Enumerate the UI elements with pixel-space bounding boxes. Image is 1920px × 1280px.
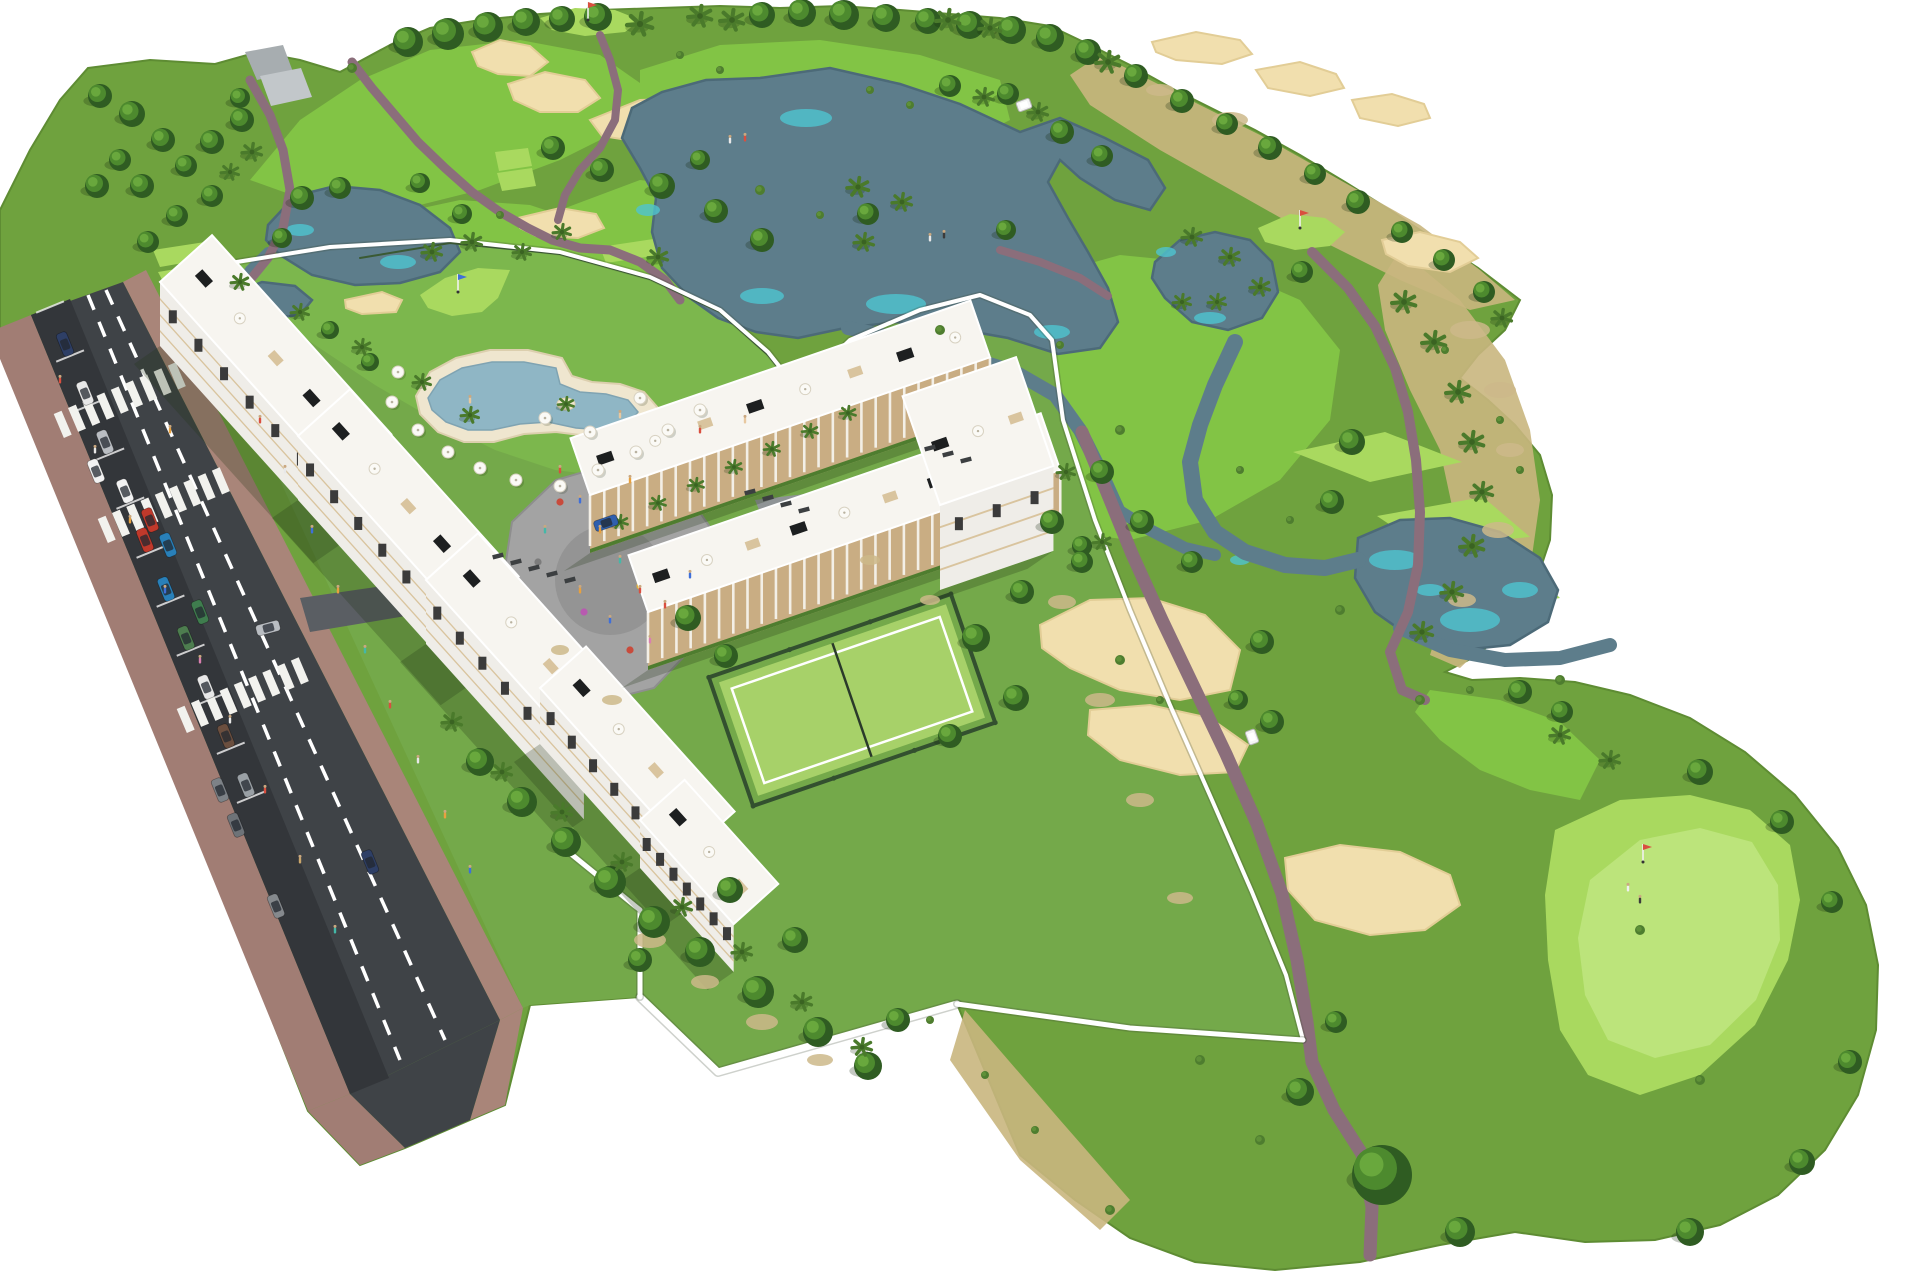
person — [337, 588, 339, 594]
person — [59, 378, 61, 384]
aerial-render — [0, 0, 1920, 1280]
window — [402, 570, 410, 583]
person — [311, 528, 313, 534]
person — [469, 398, 471, 404]
person — [544, 528, 546, 534]
window — [330, 490, 338, 503]
play-equipment — [580, 608, 587, 615]
person — [94, 448, 96, 454]
window — [696, 897, 704, 910]
window — [683, 883, 691, 896]
window — [955, 517, 963, 530]
person — [259, 418, 261, 424]
person — [649, 638, 651, 644]
window — [710, 912, 718, 925]
sand-bunker — [1352, 94, 1430, 126]
person — [699, 428, 701, 434]
window — [271, 424, 279, 437]
window — [354, 517, 362, 530]
window — [478, 657, 486, 670]
person — [1627, 886, 1629, 892]
person — [943, 233, 945, 239]
person — [619, 558, 621, 564]
person — [729, 138, 731, 144]
person — [299, 858, 301, 864]
window — [169, 310, 177, 323]
window — [1031, 491, 1039, 504]
window — [524, 707, 532, 720]
person — [1639, 898, 1641, 904]
person — [629, 478, 631, 484]
person — [639, 588, 641, 594]
person — [334, 928, 336, 934]
person — [364, 648, 366, 654]
person — [744, 418, 746, 424]
person — [129, 518, 131, 524]
person — [744, 136, 746, 142]
person — [389, 703, 391, 709]
person — [284, 468, 286, 474]
play-equipment — [626, 646, 633, 653]
person — [417, 758, 419, 764]
window — [306, 463, 314, 476]
person — [169, 428, 171, 434]
window — [643, 838, 651, 851]
window — [456, 632, 464, 645]
person — [579, 588, 581, 594]
person — [229, 718, 231, 724]
person — [929, 236, 931, 242]
window — [723, 927, 731, 940]
sand-bunker — [1256, 62, 1344, 96]
window — [589, 759, 597, 772]
window — [631, 806, 639, 819]
window — [194, 339, 202, 352]
window — [220, 367, 228, 380]
window — [568, 736, 576, 749]
sand-bunker — [1152, 32, 1252, 64]
window — [246, 396, 254, 409]
person — [689, 573, 691, 579]
window — [656, 853, 664, 866]
window — [547, 712, 555, 725]
person — [599, 528, 601, 534]
scene-svg — [0, 0, 1920, 1280]
person — [264, 788, 266, 794]
window — [993, 504, 1001, 517]
person — [559, 468, 561, 474]
person — [469, 868, 471, 874]
person — [609, 618, 611, 624]
play-equipment — [556, 498, 563, 505]
window — [610, 783, 618, 796]
person — [664, 603, 666, 609]
person — [444, 813, 446, 819]
window — [378, 544, 386, 557]
window — [669, 868, 677, 881]
window — [433, 607, 441, 620]
person — [164, 588, 166, 594]
person — [579, 498, 581, 504]
person — [199, 658, 201, 664]
person — [619, 413, 621, 419]
play-equipment — [534, 558, 541, 565]
window — [501, 682, 509, 695]
